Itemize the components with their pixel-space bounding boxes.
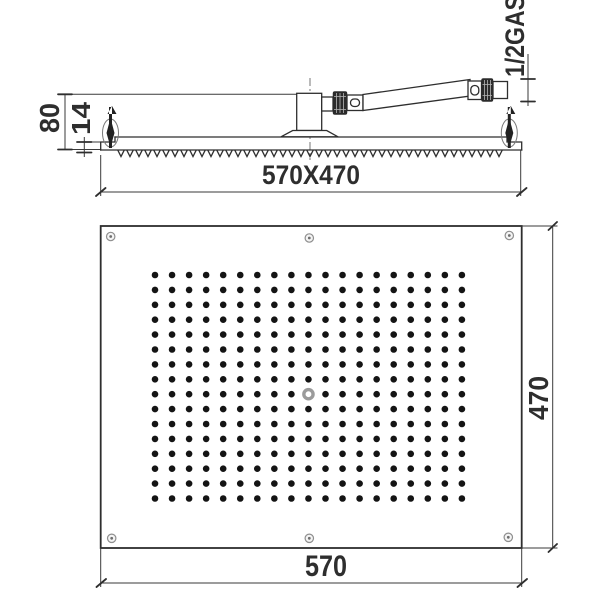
nozzle-dot bbox=[373, 436, 380, 443]
nozzle-dot bbox=[390, 465, 397, 472]
nozzle-dot bbox=[169, 480, 176, 487]
nozzle-dot bbox=[220, 406, 227, 413]
nozzle-dot bbox=[237, 436, 244, 443]
technical-drawing-svg: 80 14 bbox=[0, 0, 600, 600]
nozzle-dot bbox=[322, 495, 329, 502]
nozzle-dot bbox=[373, 406, 380, 413]
nozzle-dot bbox=[459, 287, 466, 294]
nozzle-dot bbox=[390, 361, 397, 368]
nozzle-dot bbox=[169, 331, 176, 338]
nozzle-dot bbox=[203, 302, 210, 309]
nozzle-dot bbox=[390, 451, 397, 458]
nozzle-dot bbox=[356, 421, 363, 428]
nozzle-dot bbox=[220, 316, 227, 323]
nozzle-dot bbox=[305, 436, 312, 443]
nozzle-dot bbox=[373, 331, 380, 338]
side-view: 80 14 bbox=[34, 0, 535, 196]
nozzle-dot bbox=[186, 376, 193, 383]
nozzle-dot bbox=[425, 421, 432, 428]
nozzle-dot bbox=[220, 436, 227, 443]
nozzle-dot bbox=[322, 451, 329, 458]
nozzle-dot bbox=[407, 406, 414, 413]
nozzle-dot bbox=[186, 451, 193, 458]
nozzle-dot bbox=[442, 316, 449, 323]
nozzle-dot bbox=[271, 316, 278, 323]
nozzle-dot bbox=[425, 287, 432, 294]
fitting-slot bbox=[471, 86, 479, 96]
nozzle-dot bbox=[237, 272, 244, 279]
nozzle-dot bbox=[288, 272, 295, 279]
nozzle-dot bbox=[152, 451, 159, 458]
dim-80-label: 80 bbox=[34, 103, 65, 133]
arm-tube bbox=[363, 80, 470, 111]
dim-570x470-label: 570X470 bbox=[262, 160, 360, 190]
nozzle-dot bbox=[442, 406, 449, 413]
nozzle-dot bbox=[186, 361, 193, 368]
nozzle-dot bbox=[271, 465, 278, 472]
dim-80-extension-line bbox=[65, 94, 297, 149]
nozzle-dot bbox=[169, 451, 176, 458]
nozzle-dot bbox=[254, 421, 261, 428]
nozzle-dot bbox=[271, 495, 278, 502]
nozzle-dot bbox=[339, 272, 346, 279]
arm-connector bbox=[322, 97, 333, 111]
nozzle-dot bbox=[390, 480, 397, 487]
screw-bottom-left bbox=[108, 534, 116, 542]
nozzle-dot bbox=[390, 302, 397, 309]
nozzle-dot bbox=[425, 272, 432, 279]
nozzle-dot bbox=[442, 465, 449, 472]
dim-570-label: 570 bbox=[305, 550, 347, 583]
nozzle-dot bbox=[356, 287, 363, 294]
nozzle-dot bbox=[254, 436, 261, 443]
screw-bottom-right bbox=[504, 533, 512, 541]
nozzle-dot bbox=[254, 331, 261, 338]
nozzle-dot bbox=[373, 421, 380, 428]
nozzle-dot bbox=[254, 316, 261, 323]
nozzle-dot bbox=[203, 480, 210, 487]
nozzle-dot bbox=[459, 376, 466, 383]
nozzle-dot bbox=[254, 361, 261, 368]
nozzle-dot bbox=[442, 376, 449, 383]
nozzle-dot bbox=[186, 272, 193, 279]
nozzle-dot bbox=[322, 436, 329, 443]
nozzle-dot bbox=[425, 376, 432, 383]
nozzle-dot bbox=[220, 421, 227, 428]
nozzle-dot bbox=[237, 361, 244, 368]
nozzle-dot bbox=[169, 346, 176, 353]
nozzle-dot bbox=[203, 495, 210, 502]
nozzle-dot bbox=[322, 465, 329, 472]
nozzle-dot bbox=[339, 316, 346, 323]
nozzle-dot bbox=[237, 316, 244, 323]
nozzle-dot bbox=[220, 272, 227, 279]
dim-thread-label: 1/2GAS bbox=[500, 0, 530, 77]
nozzle-grid bbox=[152, 272, 466, 502]
nozzle-dot bbox=[356, 376, 363, 383]
nozzle-dot bbox=[288, 346, 295, 353]
dim-570: 570 bbox=[97, 548, 528, 587]
nozzle-dot bbox=[425, 331, 432, 338]
nozzle-dot bbox=[390, 421, 397, 428]
nozzle-dot bbox=[407, 495, 414, 502]
center-nozzle-ring bbox=[304, 390, 313, 399]
shower-panel-profile bbox=[101, 137, 522, 157]
nozzle-dot bbox=[237, 302, 244, 309]
nozzle-dot bbox=[152, 376, 159, 383]
nozzle-dot bbox=[407, 391, 414, 398]
nozzle-dot bbox=[254, 272, 261, 279]
nozzle-dot bbox=[186, 406, 193, 413]
nozzle-dot bbox=[459, 406, 466, 413]
nozzle-dot bbox=[373, 361, 380, 368]
nozzle-dot bbox=[425, 361, 432, 368]
nozzle-dot bbox=[373, 272, 380, 279]
nozzle-dot bbox=[237, 391, 244, 398]
nozzle-dot bbox=[356, 436, 363, 443]
nozzle-dot bbox=[254, 391, 261, 398]
nozzle-dot bbox=[425, 406, 432, 413]
thread-end-block bbox=[493, 82, 508, 99]
nozzle-dot bbox=[390, 436, 397, 443]
nozzle-dot bbox=[322, 302, 329, 309]
nozzle-dot bbox=[305, 331, 312, 338]
nozzle-dot bbox=[442, 451, 449, 458]
dim-14-label: 14 bbox=[66, 101, 96, 135]
nozzle-dot bbox=[407, 346, 414, 353]
nozzle-dot bbox=[425, 436, 432, 443]
nozzle-dot bbox=[442, 331, 449, 338]
nozzle-dot bbox=[442, 302, 449, 309]
nozzle-dot bbox=[152, 406, 159, 413]
nozzle-dot bbox=[152, 465, 159, 472]
nozzle-dot bbox=[322, 391, 329, 398]
nozzle-dot bbox=[442, 495, 449, 502]
nozzle-dot bbox=[356, 346, 363, 353]
face-view: 470 570 bbox=[97, 222, 558, 587]
nozzle-dot bbox=[203, 465, 210, 472]
nozzle-dot bbox=[322, 480, 329, 487]
nozzle-dot bbox=[254, 451, 261, 458]
nozzle-dot bbox=[237, 406, 244, 413]
nozzle-dot bbox=[288, 331, 295, 338]
nozzle-dot bbox=[305, 495, 312, 502]
nozzle-dot bbox=[288, 421, 295, 428]
nozzle-dot bbox=[339, 406, 346, 413]
nozzle-dot bbox=[442, 480, 449, 487]
nozzle-dot bbox=[220, 451, 227, 458]
dim-470-label: 470 bbox=[523, 376, 554, 420]
nozzle-dot bbox=[254, 376, 261, 383]
nozzle-dot bbox=[152, 495, 159, 502]
nozzle-dot bbox=[339, 346, 346, 353]
nozzle-dot bbox=[305, 376, 312, 383]
nozzle-dot bbox=[390, 376, 397, 383]
nozzle-dot bbox=[152, 421, 159, 428]
nozzle-dot bbox=[407, 316, 414, 323]
nozzle-dot bbox=[288, 465, 295, 472]
nozzle-dot bbox=[407, 331, 414, 338]
nozzle-dot bbox=[254, 346, 261, 353]
nozzle-dot bbox=[322, 376, 329, 383]
nozzle-dot bbox=[186, 346, 193, 353]
nozzle-dot bbox=[373, 391, 380, 398]
nozzle-dot bbox=[373, 316, 380, 323]
nozzle-dot bbox=[459, 361, 466, 368]
nozzle-dot bbox=[152, 316, 159, 323]
nozzle-dot bbox=[339, 465, 346, 472]
nozzle-dot bbox=[186, 495, 193, 502]
nozzle-dot bbox=[220, 495, 227, 502]
nozzle-dot bbox=[356, 495, 363, 502]
nozzle-dot bbox=[271, 451, 278, 458]
nozzle-dot bbox=[459, 316, 466, 323]
nozzle-dot bbox=[425, 495, 432, 502]
nozzle-dot bbox=[339, 361, 346, 368]
nozzle-dot bbox=[203, 376, 210, 383]
nozzle-dot bbox=[220, 331, 227, 338]
nozzle-dot bbox=[271, 361, 278, 368]
nozzle-dot bbox=[254, 406, 261, 413]
nozzle-dot bbox=[169, 465, 176, 472]
nozzle-dot bbox=[442, 361, 449, 368]
nozzle-dot bbox=[305, 272, 312, 279]
nozzle-dot bbox=[271, 391, 278, 398]
nozzle-dot bbox=[237, 346, 244, 353]
nozzle-dot bbox=[169, 361, 176, 368]
nozzle-dot bbox=[169, 436, 176, 443]
nozzle-dot bbox=[425, 480, 432, 487]
nozzle-dot bbox=[254, 495, 261, 502]
nozzle-dot bbox=[152, 272, 159, 279]
nozzle-dot bbox=[288, 495, 295, 502]
nozzle-dot bbox=[459, 480, 466, 487]
nozzle-dot bbox=[152, 331, 159, 338]
nozzle-dot bbox=[407, 465, 414, 472]
nozzle-dot bbox=[407, 302, 414, 309]
nozzle-dot bbox=[425, 302, 432, 309]
nozzle-dot bbox=[407, 287, 414, 294]
nozzle-dot bbox=[152, 480, 159, 487]
nozzle-dot bbox=[442, 391, 449, 398]
nozzle-dot bbox=[373, 376, 380, 383]
nozzle-dot bbox=[237, 331, 244, 338]
nozzle-dot bbox=[373, 451, 380, 458]
nozzle-dot bbox=[305, 465, 312, 472]
nozzle-dot bbox=[271, 302, 278, 309]
nozzle-dot bbox=[220, 465, 227, 472]
nozzle-dot bbox=[169, 316, 176, 323]
nozzle-dot bbox=[459, 451, 466, 458]
nozzle-dot bbox=[169, 421, 176, 428]
nozzle-dot bbox=[288, 480, 295, 487]
nozzle-dot bbox=[186, 465, 193, 472]
nozzle-dot bbox=[220, 361, 227, 368]
nozzle-dot bbox=[203, 316, 210, 323]
nozzle-dot bbox=[152, 302, 159, 309]
nozzle-dot bbox=[152, 361, 159, 368]
nozzle-dot bbox=[169, 302, 176, 309]
arm-link-slot bbox=[351, 99, 360, 107]
nozzle-dot bbox=[169, 287, 176, 294]
nozzle-dot bbox=[407, 421, 414, 428]
nozzle-dot bbox=[169, 495, 176, 502]
nozzle-dot bbox=[203, 272, 210, 279]
stem-base-flare bbox=[281, 131, 338, 137]
dim-14-line bbox=[84, 137, 100, 157]
nozzle-dot bbox=[425, 451, 432, 458]
nozzle-dot bbox=[356, 316, 363, 323]
nozzle-dot bbox=[220, 391, 227, 398]
nozzle-dot bbox=[186, 331, 193, 338]
nozzle-dot bbox=[169, 272, 176, 279]
nozzle-dot bbox=[322, 316, 329, 323]
nozzle-dot bbox=[373, 346, 380, 353]
nozzle-dot bbox=[288, 451, 295, 458]
stem-body bbox=[297, 93, 322, 130]
nozzle-dot bbox=[288, 376, 295, 383]
nozzle-dot bbox=[186, 287, 193, 294]
nozzle-dot bbox=[459, 436, 466, 443]
nozzle-dot bbox=[237, 376, 244, 383]
drawing-canvas: 80 14 bbox=[0, 0, 600, 600]
nozzle-dot bbox=[305, 361, 312, 368]
nozzle-dot bbox=[339, 451, 346, 458]
nozzle-dot bbox=[305, 406, 312, 413]
nozzle-dot bbox=[271, 287, 278, 294]
nozzle-dot bbox=[271, 480, 278, 487]
nozzle-dot bbox=[288, 406, 295, 413]
nozzle-dot bbox=[203, 421, 210, 428]
nozzle-dot bbox=[305, 316, 312, 323]
nozzle-dot bbox=[339, 495, 346, 502]
nozzle-dot bbox=[407, 480, 414, 487]
nozzle-dot bbox=[288, 361, 295, 368]
nozzle-dot bbox=[425, 391, 432, 398]
nozzle-dot bbox=[305, 480, 312, 487]
nozzle-dot bbox=[356, 302, 363, 309]
nozzle-dot bbox=[271, 376, 278, 383]
nozzle-dot bbox=[186, 421, 193, 428]
nozzle-dot bbox=[152, 287, 159, 294]
nozzle-dot bbox=[254, 287, 261, 294]
nozzle-dot bbox=[152, 346, 159, 353]
nozzle-dot bbox=[390, 391, 397, 398]
nozzle-dot bbox=[459, 495, 466, 502]
nozzle-dot bbox=[339, 480, 346, 487]
nozzle-dot bbox=[203, 361, 210, 368]
nozzle-dot bbox=[203, 391, 210, 398]
nozzle-dot bbox=[356, 451, 363, 458]
nozzle-dot bbox=[203, 287, 210, 294]
nozzle-dot bbox=[305, 302, 312, 309]
nozzle-dot bbox=[322, 331, 329, 338]
nozzle-dot bbox=[459, 465, 466, 472]
nozzle-dot bbox=[305, 421, 312, 428]
nozzle-dot bbox=[425, 465, 432, 472]
nozzle-dot bbox=[203, 451, 210, 458]
nozzle-dot bbox=[407, 272, 414, 279]
nozzle-dot bbox=[203, 331, 210, 338]
screw-top-center bbox=[305, 234, 313, 242]
nozzle-dot bbox=[186, 436, 193, 443]
nozzle-dot bbox=[186, 316, 193, 323]
nozzle-dot bbox=[407, 361, 414, 368]
nozzle-dot bbox=[459, 346, 466, 353]
nozzle-dot bbox=[237, 451, 244, 458]
nozzle-dot bbox=[442, 287, 449, 294]
nozzle-dot bbox=[442, 436, 449, 443]
nozzle-dot bbox=[237, 495, 244, 502]
dim-470: 470 bbox=[522, 222, 558, 552]
nozzle-dot bbox=[271, 436, 278, 443]
nozzle-dot bbox=[237, 287, 244, 294]
nozzle-dot bbox=[288, 391, 295, 398]
nozzle-dot bbox=[356, 391, 363, 398]
nozzle-dot bbox=[407, 451, 414, 458]
nozzle-dot bbox=[459, 421, 466, 428]
nozzle-dot bbox=[220, 376, 227, 383]
nozzle-dot bbox=[254, 465, 261, 472]
nozzle-dot bbox=[203, 346, 210, 353]
nozzle-dot bbox=[305, 346, 312, 353]
nozzle-dot bbox=[339, 331, 346, 338]
nozzle-dot bbox=[322, 421, 329, 428]
nozzle-dot bbox=[186, 302, 193, 309]
nozzle-dot bbox=[390, 272, 397, 279]
nozzle-dot bbox=[339, 391, 346, 398]
screw-top-right bbox=[505, 231, 513, 239]
dim-570x470: 570X470 bbox=[96, 150, 527, 196]
nozzle-dot bbox=[322, 346, 329, 353]
nozzle-dot bbox=[339, 287, 346, 294]
nozzle-dot bbox=[459, 302, 466, 309]
nozzle-dot bbox=[373, 465, 380, 472]
nozzle-dot bbox=[152, 391, 159, 398]
nozzle-dot bbox=[356, 406, 363, 413]
nozzle-dot bbox=[442, 421, 449, 428]
nozzle-dot bbox=[203, 406, 210, 413]
nozzle-dot bbox=[373, 495, 380, 502]
nozzle-dot bbox=[459, 331, 466, 338]
nozzle-dot bbox=[356, 480, 363, 487]
nozzle-dot bbox=[322, 287, 329, 294]
nozzle-dot bbox=[407, 376, 414, 383]
nozzle-dot bbox=[339, 421, 346, 428]
nozzle-dot bbox=[322, 361, 329, 368]
nozzle-dot bbox=[220, 287, 227, 294]
screw-top-left bbox=[107, 232, 115, 240]
nozzle-dot bbox=[407, 436, 414, 443]
nozzle-dot bbox=[442, 272, 449, 279]
nozzle-dot bbox=[237, 465, 244, 472]
nozzle-dot bbox=[220, 480, 227, 487]
nozzle-dot bbox=[271, 406, 278, 413]
nozzle-dot bbox=[288, 287, 295, 294]
shower-arm bbox=[322, 80, 470, 115]
nozzle-dot bbox=[339, 436, 346, 443]
nozzle-dot bbox=[390, 495, 397, 502]
nozzle-dot bbox=[425, 316, 432, 323]
nozzle-dot bbox=[220, 302, 227, 309]
nozzle-dot bbox=[271, 331, 278, 338]
wall-fitting bbox=[468, 79, 508, 102]
nozzle-dot bbox=[356, 331, 363, 338]
nozzle-dot bbox=[322, 272, 329, 279]
nozzle-dot bbox=[237, 480, 244, 487]
nozzle-dot bbox=[169, 391, 176, 398]
nozzle-dot bbox=[390, 406, 397, 413]
